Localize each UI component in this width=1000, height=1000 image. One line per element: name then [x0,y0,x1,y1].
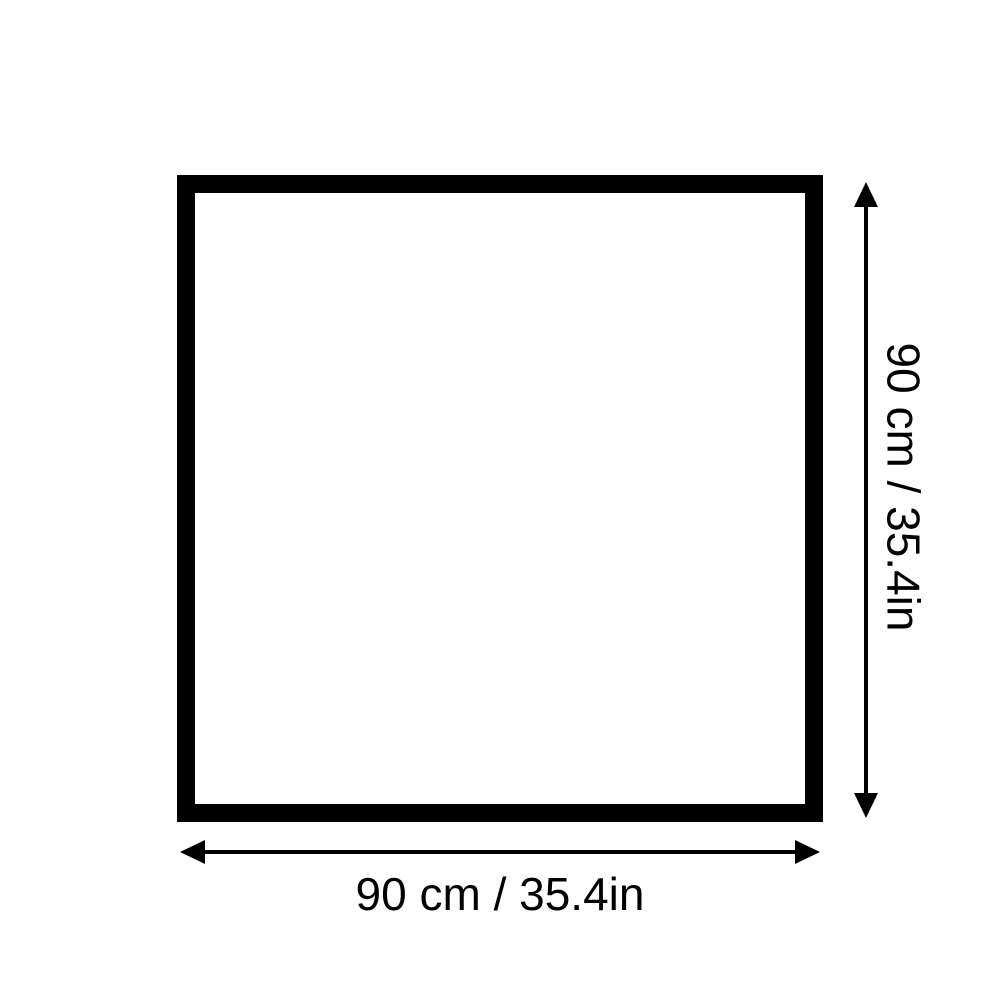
height-dimension-label: 90 cm / 35.4in [874,164,934,811]
arrow-left-icon [180,840,205,864]
arrow-right-icon [795,840,820,864]
width-dimension-label: 90 cm / 35.4in [178,868,822,921]
dimension-diagram: 90 cm / 35.4in 90 cm / 35.4in [0,0,1000,1000]
width-arrow [180,840,820,864]
dimension-arrows [0,0,1000,1000]
